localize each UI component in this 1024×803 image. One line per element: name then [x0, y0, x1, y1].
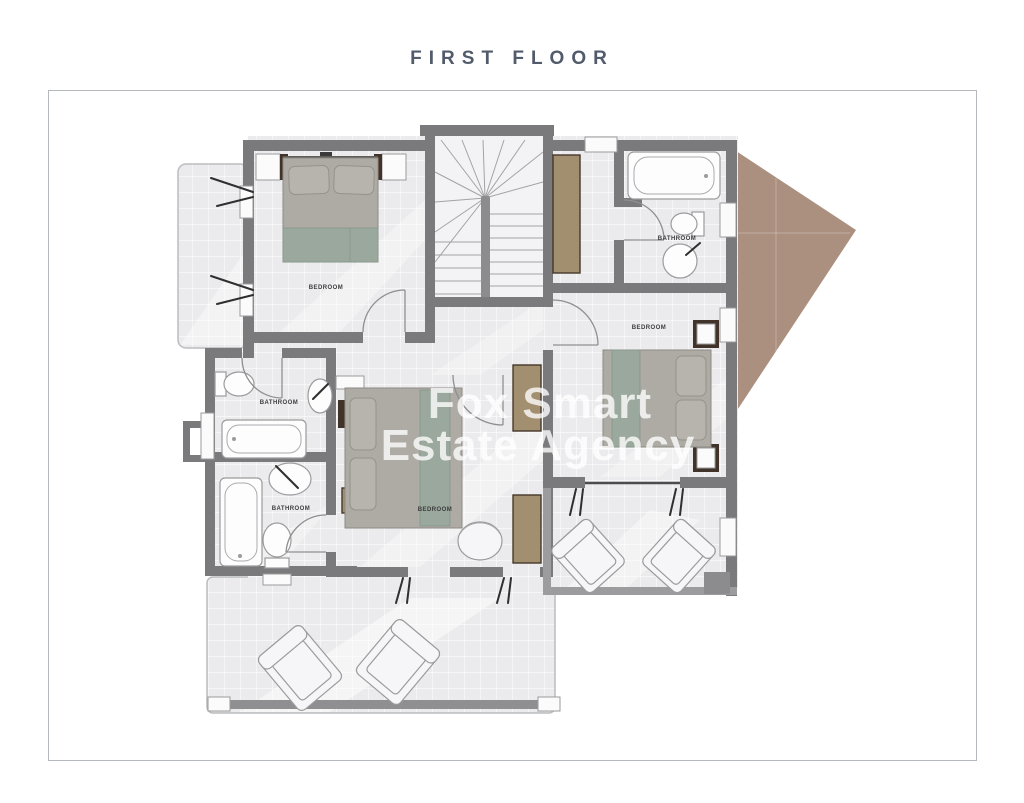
window — [720, 203, 736, 237]
wardrobe — [513, 495, 541, 563]
room-label-bathroom-top-right: BATHROOM — [658, 236, 696, 242]
room-label-bedroom-middle: BEDROOM — [418, 507, 452, 513]
window — [720, 518, 736, 556]
closet-door — [336, 376, 364, 389]
watermark-line2: Estate Agency — [381, 421, 696, 470]
terrace-railing — [228, 700, 540, 709]
floor-plan-drawing: BEDROOM BATHROOM BEDROOM BATHROOM BATHRO… — [0, 0, 1024, 803]
balcony-corner-post — [704, 572, 730, 594]
toilet — [215, 372, 254, 396]
toilet — [671, 212, 704, 236]
watermark: Fox Smart Estate Agency — [381, 379, 696, 470]
floor-plan-page: FIRST FLOOR — [0, 0, 1024, 803]
room-label-bathroom-lower: BATHROOM — [272, 506, 310, 512]
nightstand — [256, 154, 280, 180]
roof-overhang — [730, 147, 856, 418]
washbasin — [269, 463, 311, 495]
wardrobe — [553, 155, 580, 273]
room-label-bedroom-top-left: BEDROOM — [309, 285, 343, 291]
washbasin — [308, 379, 332, 413]
room-label-bathroom-middle: BATHROOM — [260, 400, 298, 406]
nightstand — [382, 154, 406, 180]
double-bed — [283, 156, 378, 262]
window — [585, 137, 617, 152]
window — [201, 413, 214, 459]
stair-spine-wall — [481, 196, 490, 302]
window — [720, 308, 736, 342]
door-sill — [263, 574, 291, 585]
room-label-bedroom-right: BEDROOM — [632, 325, 666, 331]
